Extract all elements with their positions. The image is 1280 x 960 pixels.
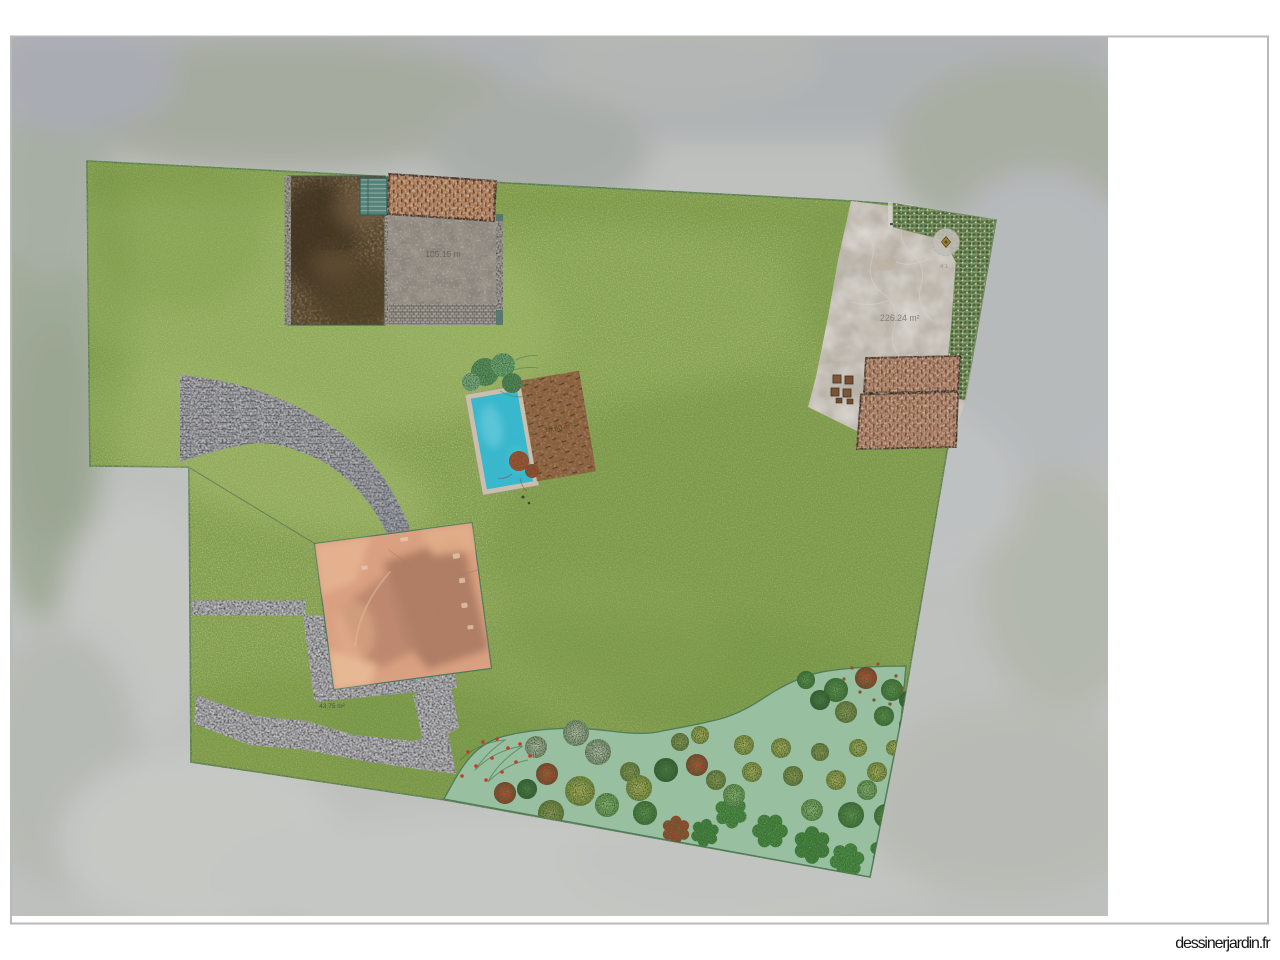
svg-text:226.24 m²: 226.24 m² xyxy=(880,313,920,323)
svg-text:dessinerjardin.fr: dessinerjardin.fr xyxy=(1175,935,1271,952)
svg-text:120.24 m²: 120.24 m² xyxy=(320,245,352,252)
svg-text:105.15 m: 105.15 m xyxy=(425,249,460,259)
svg-text:43.75 m²: 43.75 m² xyxy=(319,703,345,710)
svg-text:4 1: 4 1 xyxy=(940,264,949,270)
